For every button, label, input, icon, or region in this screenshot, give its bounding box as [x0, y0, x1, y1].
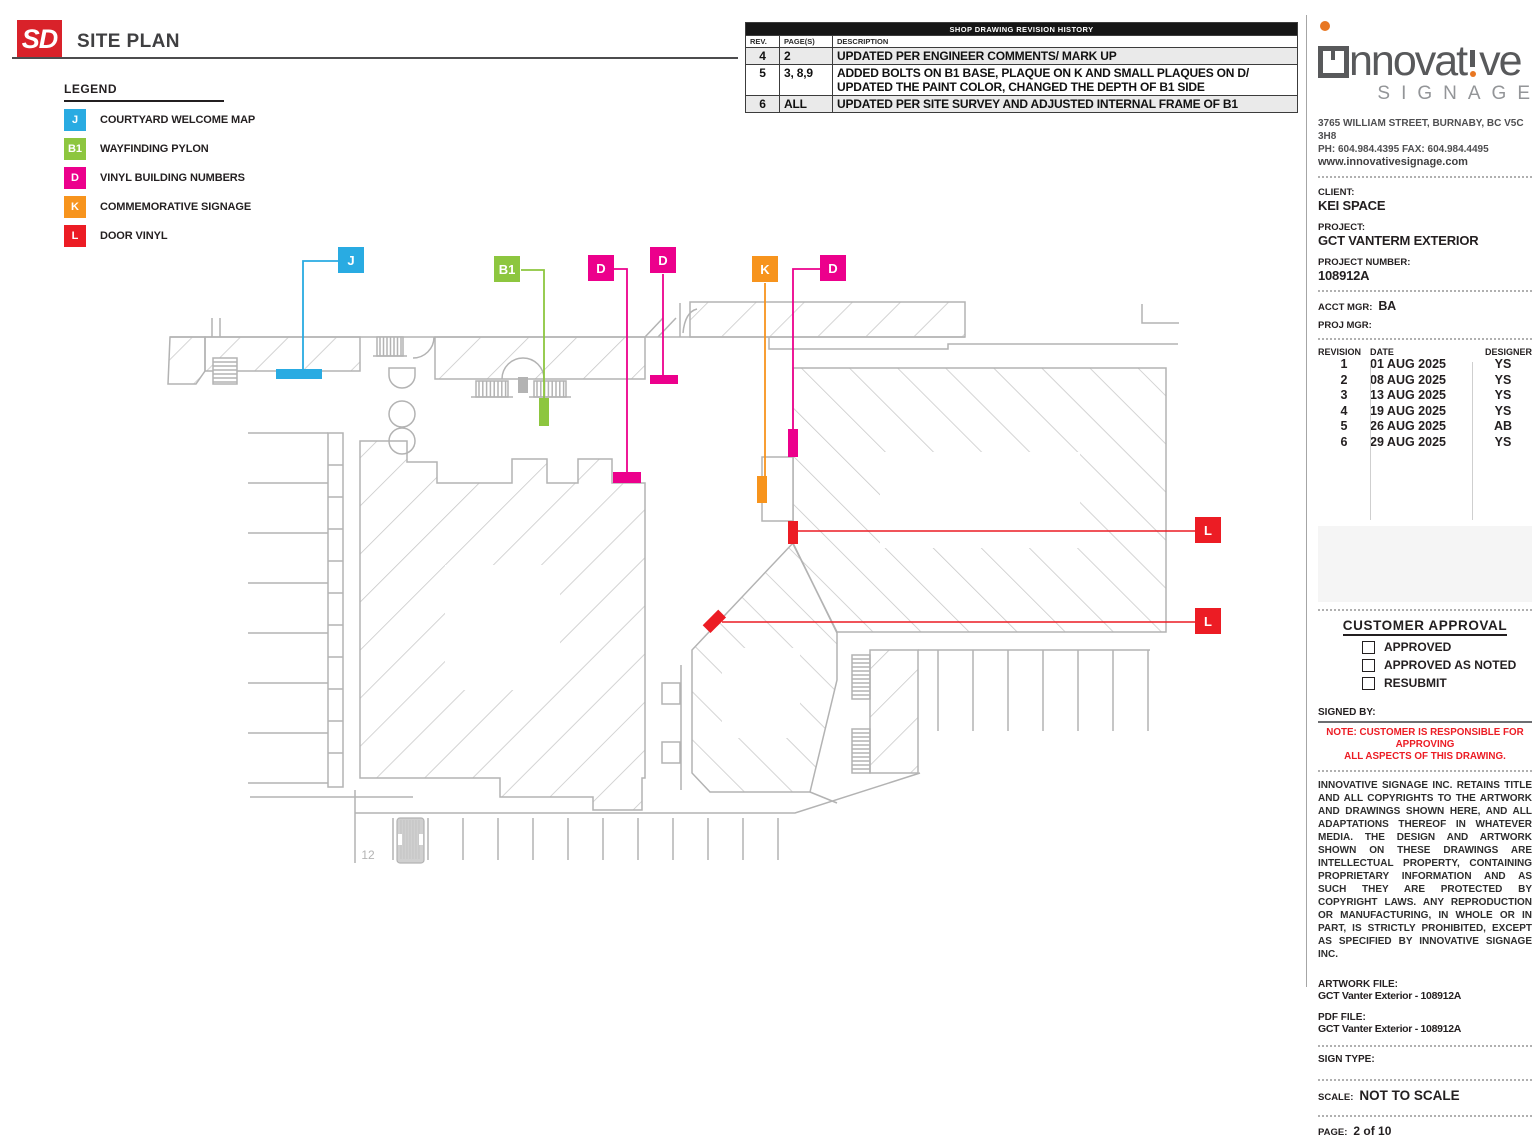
- sign-type-label: SIGN TYPE:: [1318, 1054, 1532, 1065]
- legend-item: KCOMMEMORATIVE SIGNAGE: [64, 196, 324, 218]
- separator: [1318, 1045, 1532, 1047]
- col-designer: DESIGNER: [1472, 347, 1534, 357]
- approval-checkbox[interactable]: [1362, 641, 1375, 654]
- sheet-type-badge-text: SD: [22, 24, 58, 55]
- revision-history-row: 53, 8,9ADDED BOLTS ON B1 BASE, PLAQUE ON…: [746, 64, 1297, 95]
- legend-label: WAYFINDING PYLON: [100, 143, 209, 155]
- separator: [1318, 1115, 1532, 1117]
- sidebar-revision-row: 101 AUG 2025YS: [1318, 357, 1532, 373]
- artwork-file-label: ARTWORK FILE:: [1318, 979, 1532, 990]
- page-label: PAGE:: [1318, 1127, 1347, 1138]
- legend-title: LEGEND: [64, 82, 324, 96]
- plan-marker-d: D: [588, 255, 614, 281]
- project-label: PROJECT:: [1318, 222, 1532, 233]
- artwork-file-value: GCT Vanter Exterior - 108912A: [1318, 990, 1532, 1002]
- revision-pages: ALL: [780, 96, 833, 112]
- sign-location-bar-j: [276, 369, 322, 379]
- sidebar-revision-row: 526 AUG 2025AB: [1318, 419, 1532, 435]
- client-value: KEI SPACE: [1318, 198, 1532, 213]
- logo-word-part: nnovat: [1349, 41, 1466, 81]
- table-divider: [1370, 362, 1371, 520]
- scale-value: NOT TO SCALE: [1359, 1088, 1459, 1103]
- revision-desc: UPDATED PER SITE SURVEY AND ADJUSTED INT…: [833, 96, 1297, 112]
- client-label: CLIENT:: [1318, 187, 1532, 198]
- revision-desc: ADDED BOLTS ON B1 BASE, PLAQUE ON K AND …: [833, 65, 1297, 95]
- plan-marker-d: D: [650, 247, 676, 273]
- sidebar-revision-row: 629 AUG 2025YS: [1318, 435, 1532, 451]
- logo-square-icon: [1318, 46, 1349, 78]
- logo-word-part: ve: [1479, 41, 1520, 81]
- revision-pages: 3, 8,9: [780, 65, 833, 95]
- revision-desc: UPDATED PER ENGINEER COMMENTS/ MARK UP: [833, 48, 1297, 64]
- col-pages: PAGE(S): [780, 36, 833, 47]
- approval-checkbox[interactable]: [1362, 659, 1375, 672]
- legend-label: VINYL BUILDING NUMBERS: [100, 172, 245, 184]
- sheet-type-badge: SD: [17, 20, 62, 58]
- col-revision: REVISION: [1318, 347, 1370, 357]
- sign-location-bar-k: [757, 476, 767, 503]
- leader-line-d: [793, 269, 820, 429]
- customer-approval-title: CUSTOMER APPROVAL: [1343, 618, 1507, 636]
- plan-marker-k: K: [752, 256, 778, 282]
- legal-text: INNOVATIVE SIGNAGE INC. RETAINS TITLE AN…: [1318, 779, 1532, 961]
- leader-line-b1: [521, 270, 544, 398]
- plan-marker-l: L: [1195, 608, 1221, 634]
- approval-option: APPROVED AS NOTED: [1362, 658, 1532, 672]
- company-website: www.innovativesignage.com: [1318, 156, 1532, 169]
- logo-exclamation-icon: [1468, 39, 1477, 77]
- parking-stall-number: 12: [361, 848, 375, 862]
- approval-option-label: APPROVED AS NOTED: [1384, 658, 1516, 672]
- acct-mgr-label: ACCT MGR:: [1318, 302, 1372, 313]
- sign-location-bar-d: [613, 472, 641, 483]
- revision-rev: 5: [746, 65, 780, 95]
- approval-option: APPROVED: [1362, 640, 1532, 654]
- separator: [1318, 609, 1532, 611]
- page-value: 2 of 10: [1353, 1124, 1391, 1138]
- table-divider: [1472, 362, 1473, 520]
- sidebar-revision-header: REVISION DATE DESIGNER: [1318, 347, 1532, 357]
- company-address: 3765 WILLIAM STREET, BURNABY, BC V5C 3H8: [1318, 117, 1532, 143]
- plan-marker-d: D: [820, 255, 846, 281]
- project-number-value: 108912A: [1318, 268, 1532, 283]
- plan-marker-b1: B1: [494, 256, 520, 282]
- legend-swatch: J: [64, 109, 86, 131]
- company-address-block: 3765 WILLIAM STREET, BURNABY, BC V5C 3H8…: [1318, 117, 1532, 169]
- revision-history-title: SHOP DRAWING REVISION HISTORY: [746, 23, 1297, 35]
- col-description: DESCRIPTION: [833, 36, 1297, 47]
- sidebar-revision-row: 313 AUG 2025YS: [1318, 388, 1532, 404]
- legend-swatch: D: [64, 167, 86, 189]
- approval-checkbox[interactable]: [1362, 677, 1375, 690]
- legend-swatch: K: [64, 196, 86, 218]
- revision-history-table: SHOP DRAWING REVISION HISTORY REV. PAGE(…: [745, 22, 1298, 113]
- sign-location-bar-l: [703, 610, 726, 633]
- legend-swatch: L: [64, 225, 86, 247]
- revision-history-row: 42UPDATED PER ENGINEER COMMENTS/ MARK UP: [746, 47, 1297, 64]
- approval-note-line2: ALL ASPECTS OF THIS DRAWING.: [1318, 751, 1532, 763]
- legend-label: DOOR VINYL: [100, 230, 167, 242]
- company-tagline: SIGNAGE: [1318, 83, 1539, 105]
- separator: [1318, 770, 1532, 772]
- revision-history-header: REV. PAGE(S) DESCRIPTION: [746, 35, 1297, 47]
- pdf-file-label: PDF FILE:: [1318, 1012, 1532, 1023]
- empty-panel: [1318, 526, 1532, 602]
- legend-item: DVINYL BUILDING NUMBERS: [64, 167, 324, 189]
- separator: [1318, 176, 1532, 178]
- approval-note-line1: NOTE: CUSTOMER IS RESPONSIBLE FOR APPROV…: [1318, 727, 1532, 751]
- sidebar-revision-table: REVISION DATE DESIGNER 101 AUG 2025YS208…: [1318, 347, 1532, 602]
- sign-location-bar-d: [788, 429, 798, 457]
- acct-mgr-value: BA: [1378, 299, 1396, 313]
- approval-option-label: APPROVED: [1384, 640, 1451, 654]
- col-rev: REV.: [746, 36, 780, 47]
- plan-marker-j: J: [338, 247, 364, 273]
- building-outlines: 12: [168, 302, 1179, 863]
- project-number-label: PROJECT NUMBER:: [1318, 257, 1532, 268]
- title-rule: [12, 57, 738, 59]
- legend: LEGEND JCOURTYARD WELCOME MAPB1WAYFINDIN…: [64, 82, 324, 247]
- sidebar-revision-row: 208 AUG 2025YS: [1318, 373, 1532, 389]
- separator: [1318, 1079, 1532, 1081]
- legend-label: COMMEMORATIVE SIGNAGE: [100, 201, 251, 213]
- project-value: GCT VANTERM EXTERIOR: [1318, 233, 1532, 248]
- approval-option-label: RESUBMIT: [1384, 676, 1447, 690]
- leader-line-j: [303, 261, 338, 370]
- legend-item: LDOOR VINYL: [64, 225, 324, 247]
- revision-pages: 2: [780, 48, 833, 64]
- leader-line-d: [614, 269, 627, 472]
- scale-label: SCALE:: [1318, 1092, 1353, 1103]
- company-phone-fax: PH: 604.984.4395 FAX: 604.984.4495: [1318, 143, 1532, 156]
- col-date: DATE: [1370, 347, 1472, 357]
- approval-note: NOTE: CUSTOMER IS RESPONSIBLE FOR APPROV…: [1318, 727, 1532, 763]
- plan-marker-l: L: [1195, 517, 1221, 543]
- logo-accent-dot-icon: [1320, 21, 1330, 31]
- sign-location-bar-b1: [539, 398, 549, 426]
- company-logo: nnovat ve: [1318, 25, 1532, 81]
- sign-location-bar-d: [650, 375, 678, 384]
- title-block-sidebar: nnovat ve SIGNAGE 3765 WILLIAM STREET, B…: [1306, 15, 1532, 987]
- sidebar-revision-row: 419 AUG 2025YS: [1318, 404, 1532, 420]
- legend-rule: [64, 100, 224, 102]
- legend-swatch: B1: [64, 138, 86, 160]
- sign-location-bar-l: [788, 521, 798, 544]
- proj-mgr-label: PROJ MGR:: [1318, 320, 1372, 331]
- marker-leader-lines: [276, 261, 1195, 633]
- approval-option: RESUBMIT: [1362, 676, 1532, 690]
- pdf-file-value: GCT Vanter Exterior - 108912A: [1318, 1023, 1532, 1035]
- revision-history-row: 6ALLUPDATED PER SITE SURVEY AND ADJUSTED…: [746, 95, 1297, 112]
- revision-rev: 4: [746, 48, 780, 64]
- page-title: SITE PLAN: [77, 31, 180, 53]
- legend-item: JCOURTYARD WELCOME MAP: [64, 109, 324, 131]
- signed-by-label: SIGNED BY:: [1318, 707, 1532, 723]
- shop-drawing-sheet: { "header": {"badge": "SD", "title": "SI…: [0, 0, 1539, 999]
- separator: [1318, 290, 1532, 292]
- legend-item: B1WAYFINDING PYLON: [64, 138, 324, 160]
- legend-label: COURTYARD WELCOME MAP: [100, 114, 255, 126]
- separator: [1318, 338, 1532, 340]
- revision-rev: 6: [746, 96, 780, 112]
